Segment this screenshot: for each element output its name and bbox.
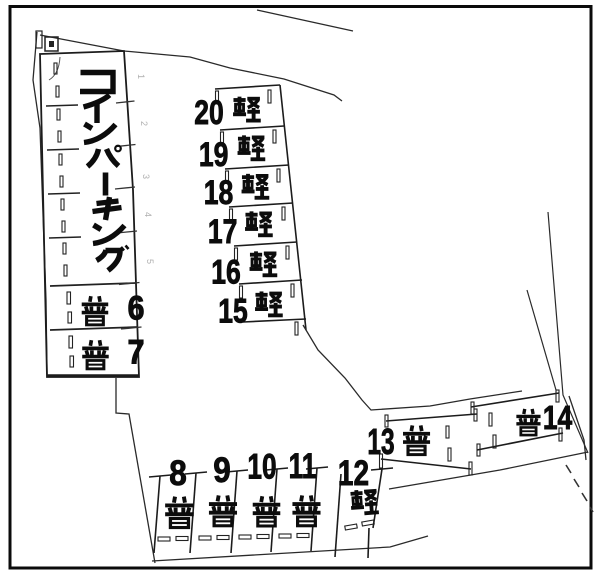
svg-text:20: 20 [194, 94, 224, 132]
svg-text:9: 9 [213, 452, 231, 491]
svg-text:4: 4 [143, 212, 153, 217]
svg-text:8: 8 [169, 455, 187, 494]
svg-text:16: 16 [211, 253, 241, 291]
svg-text:2: 2 [139, 121, 149, 126]
svg-text:3: 3 [141, 174, 151, 179]
svg-text:5: 5 [145, 259, 155, 264]
svg-text:15: 15 [218, 292, 248, 330]
svg-text:10: 10 [247, 447, 276, 487]
svg-text:18: 18 [204, 174, 234, 212]
svg-text:17: 17 [208, 213, 238, 251]
svg-text:1: 1 [136, 74, 146, 79]
svg-text:11: 11 [289, 446, 317, 486]
svg-text:13: 13 [367, 421, 394, 462]
svg-text:6: 6 [127, 289, 144, 327]
svg-text:14: 14 [543, 400, 573, 436]
svg-text:19: 19 [199, 136, 229, 174]
svg-text:7: 7 [127, 333, 144, 371]
svg-text:12: 12 [338, 453, 369, 493]
